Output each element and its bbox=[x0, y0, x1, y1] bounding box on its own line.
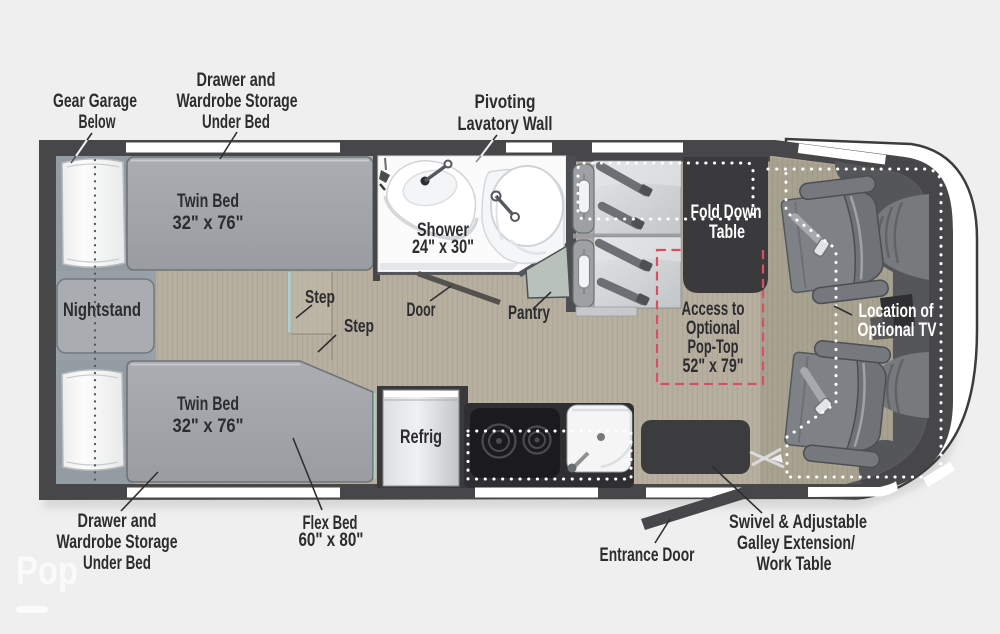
svg-text:Gear Garage: Gear Garage bbox=[53, 91, 137, 112]
svg-text:Nightstand: Nightstand bbox=[63, 300, 141, 321]
svg-text:Optional TV: Optional TV bbox=[858, 320, 937, 341]
svg-text:Optional: Optional bbox=[686, 318, 740, 339]
svg-text:Under Bed: Under Bed bbox=[202, 112, 270, 133]
svg-text:24" x 30": 24" x 30" bbox=[412, 237, 474, 258]
svg-text:Under Bed: Under Bed bbox=[83, 553, 151, 574]
svg-text:Twin Bed: Twin Bed bbox=[177, 394, 239, 415]
svg-text:Swivel & Adjustable: Swivel & Adjustable bbox=[729, 512, 867, 533]
svg-text:Pop-Top: Pop-Top bbox=[688, 337, 739, 358]
svg-text:Drawer and: Drawer and bbox=[197, 70, 276, 91]
svg-text:Pantry: Pantry bbox=[508, 303, 550, 324]
svg-text:Twin Bed: Twin Bed bbox=[177, 191, 239, 212]
svg-text:52" x 79": 52" x 79" bbox=[683, 356, 744, 377]
svg-text:Work Table: Work Table bbox=[757, 554, 832, 575]
svg-text:Door: Door bbox=[407, 300, 436, 321]
svg-text:Location of: Location of bbox=[859, 301, 934, 322]
svg-text:Step: Step bbox=[344, 316, 374, 336]
svg-text:Below: Below bbox=[79, 112, 116, 133]
svg-text:Step: Step bbox=[305, 287, 335, 307]
svg-text:Lavatory Wall: Lavatory Wall bbox=[458, 114, 553, 135]
svg-text:Drawer and: Drawer and bbox=[78, 511, 157, 532]
svg-text:Refrig: Refrig bbox=[400, 427, 442, 448]
svg-text:Pivoting: Pivoting bbox=[475, 92, 536, 113]
svg-text:Fold Down: Fold Down bbox=[691, 202, 762, 223]
svg-text:Table: Table bbox=[709, 222, 745, 243]
svg-text:Galley Extension/: Galley Extension/ bbox=[737, 533, 856, 554]
svg-text:32" x 76": 32" x 76" bbox=[173, 416, 244, 437]
svg-text:Entrance Door: Entrance Door bbox=[600, 545, 695, 566]
svg-text:Pop: Pop bbox=[16, 549, 78, 593]
svg-text:Access to: Access to bbox=[682, 299, 745, 320]
svg-text:Wardrobe Storage: Wardrobe Storage bbox=[177, 91, 298, 112]
svg-text:60" x 80": 60" x 80" bbox=[299, 530, 364, 551]
svg-text:32" x 76": 32" x 76" bbox=[173, 213, 244, 234]
